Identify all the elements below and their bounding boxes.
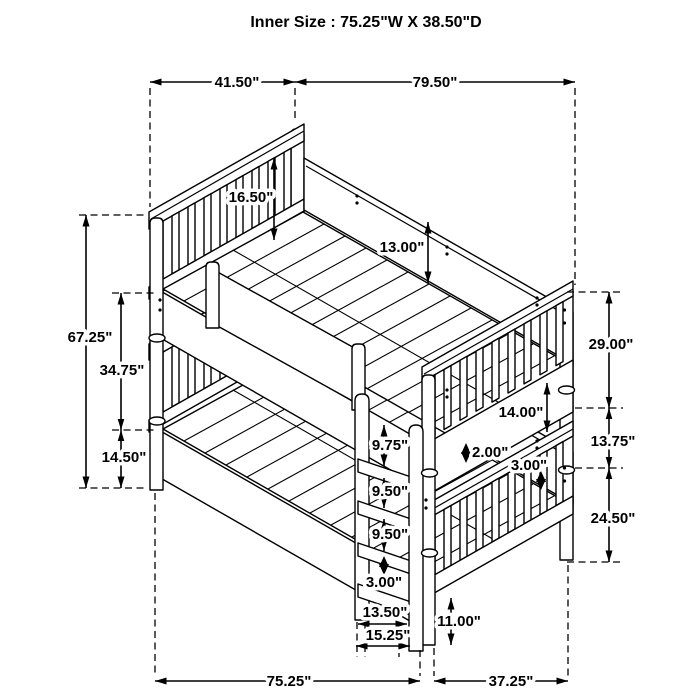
dim-rail-to-floor: 14.50"	[102, 430, 147, 488]
dim-label-rail-to-floor: 14.50"	[102, 449, 147, 466]
dim-leg-height: 11.00"	[437, 598, 481, 645]
ladder-right-stringer	[409, 425, 423, 651]
dim-label-right-mid: 13.75"	[591, 433, 636, 450]
near-foot-post	[422, 375, 435, 645]
dim-overall-height: 67.25"	[68, 215, 113, 488]
dim-label-footboard-panel: 14.00"	[499, 404, 544, 421]
dim-base-length: 75.25"	[155, 673, 420, 690]
dim-label-right-lower: 24.50"	[591, 510, 636, 527]
dim-right-upper: 29.00"	[589, 292, 634, 408]
dim-label-leg-height: 11.00"	[437, 613, 481, 630]
dim-label-base-length: 75.25"	[267, 673, 312, 690]
dim-right-lower: 24.50"	[591, 468, 636, 562]
dim-label-side-rail-height: 13.00"	[380, 239, 425, 256]
dim-label-right-upper: 29.00"	[589, 336, 634, 353]
dim-label-ladder-gap-lower: 9.50"	[372, 526, 408, 543]
dim-label-ladder-inner-width: 13.50"	[363, 604, 408, 621]
bunk-bed-dimension-diagram: Inner Size : 75.25"W X 38.50"D	[0, 0, 700, 700]
dim-bed-length: 79.50"	[295, 74, 575, 91]
dim-ladder-inner-width: 13.50"	[358, 604, 407, 624]
bed-drawing	[149, 124, 575, 651]
diagram-canvas: Inner Size : 75.25"W X 38.50"D	[0, 0, 700, 700]
dim-label-ladder-gap-mid: 9.50"	[372, 483, 408, 500]
near-head-post	[150, 218, 163, 490]
page-title: Inner Size : 75.25"W X 38.50"D	[250, 14, 481, 31]
guard-rail-post-left	[206, 262, 219, 328]
dim-rail-to-rail: 34.75"	[100, 293, 145, 430]
dim-label-slat-thickness: 2.00"	[472, 444, 508, 461]
dim-label-ladder-gap-top: 9.75"	[372, 437, 408, 454]
dim-right-mid: 13.75"	[591, 408, 636, 468]
dim-label-base-foot-width: 37.25"	[489, 673, 534, 690]
dim-headboard-width: 41.50"	[150, 74, 295, 91]
dim-label-headboard-panel: 16.50"	[229, 189, 274, 206]
dim-label-rail-to-rail: 34.75"	[100, 362, 145, 379]
dim-label-ladder-outer-width: 15.25"	[366, 627, 411, 644]
dim-base-foot-width: 37.25"	[434, 673, 568, 690]
dim-label-ladder-rung-thickness: 3.00"	[366, 574, 402, 591]
dim-label-headboard-width: 41.50"	[215, 74, 260, 91]
dim-ladder-outer-width: 15.25"	[356, 627, 410, 646]
dim-label-overall-height: 67.25"	[68, 329, 113, 346]
dim-label-rail-thickness: 3.00"	[511, 457, 547, 474]
dim-label-bed-length: 79.50"	[413, 74, 458, 91]
